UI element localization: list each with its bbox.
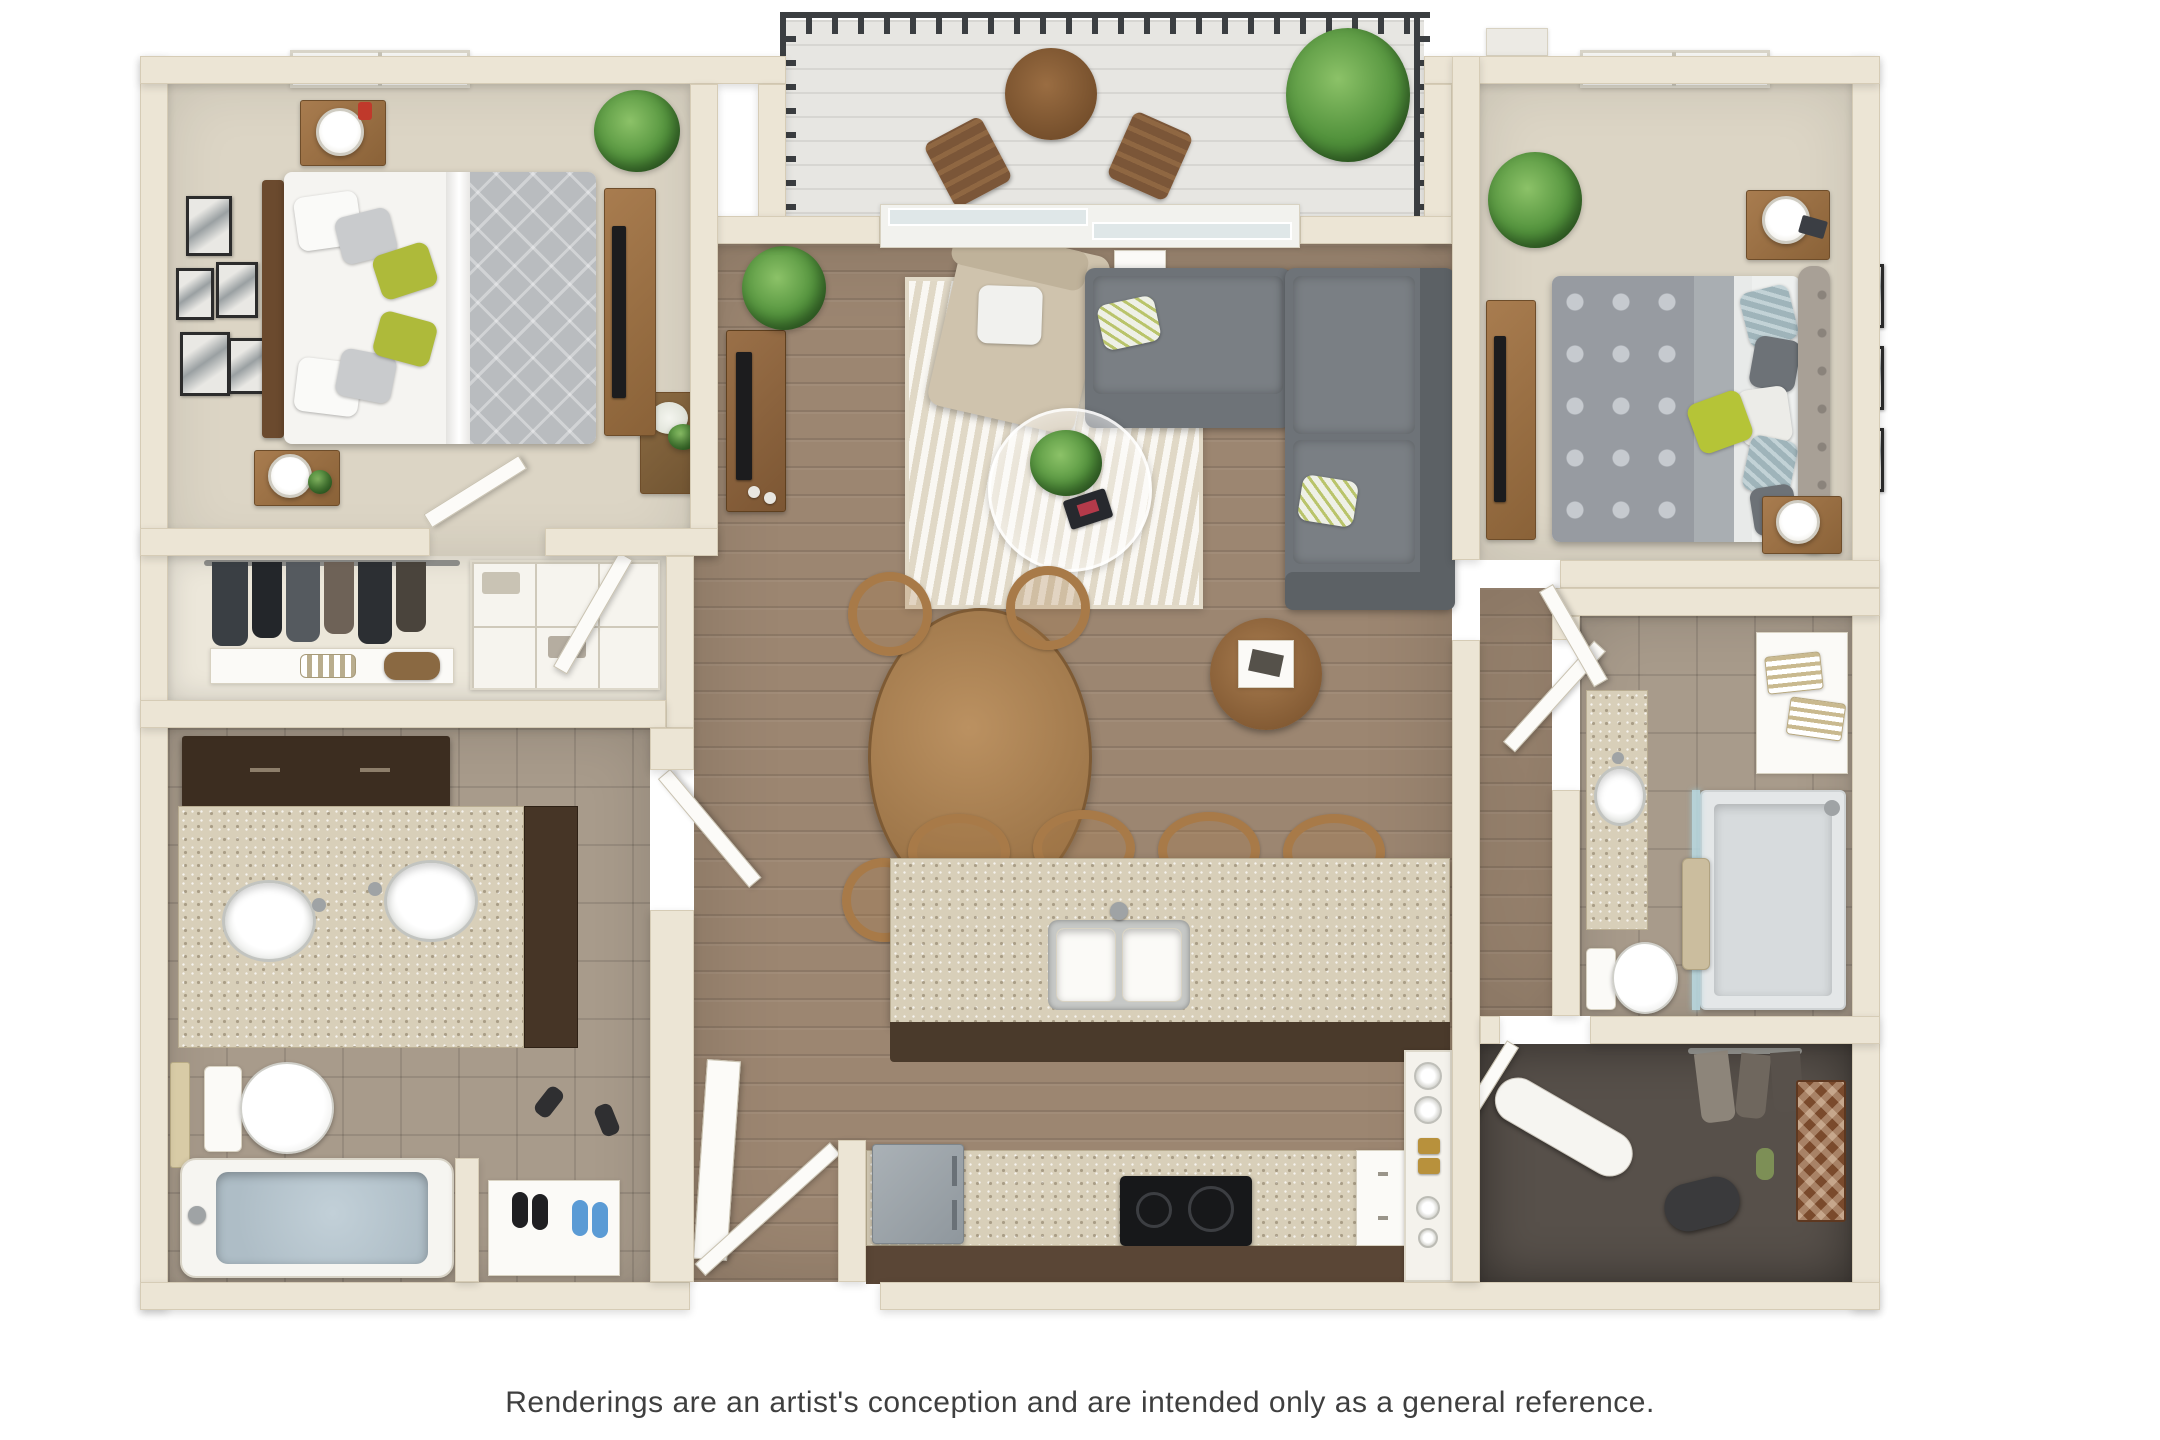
bed-2-pillow-gray: [1748, 334, 1802, 393]
cabinet-handle: [1378, 1172, 1388, 1176]
tv-screen: [736, 352, 752, 480]
tv-screen: [612, 226, 626, 398]
cabinet-handle: [360, 768, 390, 772]
balcony-plant: [1286, 28, 1410, 162]
cabinet-handle: [250, 768, 280, 772]
bed-2-duvet: [1552, 276, 1694, 542]
kitchen-cabinet: [1356, 1150, 1408, 1246]
bowl: [1416, 1196, 1440, 1220]
wall-living-top: [1300, 216, 1452, 244]
wall-outer-right: [1852, 56, 1880, 1310]
sink-basin: [1056, 928, 1116, 1002]
armchair-pillow: [977, 285, 1043, 345]
wall-art-frame: [186, 196, 232, 256]
small-plant: [308, 470, 332, 494]
toilet-bowl: [1612, 942, 1678, 1014]
wall-living-top: [714, 216, 880, 244]
coffee-table-plant: [1030, 430, 1102, 496]
refrigerator-handle: [952, 1200, 957, 1230]
hanging-clothes: [324, 562, 354, 634]
hanging-clothes: [252, 562, 282, 638]
wall-art-frame: [180, 332, 230, 396]
sofa-cushion: [1293, 276, 1415, 434]
wall-kitchen-stub: [838, 1140, 866, 1282]
red-decor: [358, 102, 372, 120]
blue-shoes: [592, 1202, 608, 1238]
sofa-armrest: [1285, 572, 1455, 610]
wall-bedroom-1-east: [690, 84, 718, 556]
rolled-towels: [300, 654, 356, 678]
bed-1-duvet-fold: [446, 172, 472, 444]
sink: [222, 880, 316, 962]
wall-bathroom-1-east: [650, 910, 694, 1282]
balcony-table: [1005, 48, 1097, 140]
striped-towels: [1786, 696, 1847, 741]
shower-towel: [1682, 858, 1710, 970]
dining-chair: [1006, 566, 1090, 650]
plate-stack: [1414, 1062, 1442, 1090]
green-bottle: [1756, 1148, 1774, 1180]
cabinet-handle: [1378, 1216, 1388, 1220]
refrigerator-handle: [952, 1156, 957, 1186]
media-console: [726, 330, 786, 512]
table-lamp: [1776, 500, 1820, 544]
corner-plant: [1488, 152, 1582, 248]
towel-bar: [170, 1062, 190, 1168]
wall-bathroom-1-east: [650, 728, 694, 770]
wall-art-frame: [176, 268, 214, 320]
dining-chair: [848, 572, 932, 656]
cooktop-burner: [1136, 1192, 1172, 1228]
toilet-tank: [204, 1066, 242, 1152]
bed-1-quilt: [470, 172, 596, 444]
wall-bedroom-1-south: [140, 528, 430, 556]
rooftop-vent: [1486, 28, 1548, 56]
hanging-clothes: [286, 562, 320, 642]
toilet-bowl: [240, 1062, 334, 1154]
kitchen-island-cabinet-face: [890, 1022, 1450, 1062]
bathroom-1-upper-cabinet: [182, 736, 450, 808]
floor-plan-rendering: Renderings are an artist's conception an…: [0, 0, 2160, 1440]
black-shoes: [512, 1192, 528, 1228]
wall-bedroom-2-south: [1560, 560, 1880, 588]
hallway-floor: [1480, 588, 1552, 1016]
kitchen-counter-face: [866, 1246, 1410, 1284]
hanging-clothes: [396, 562, 426, 632]
tub-faucet: [188, 1206, 206, 1224]
wall-bedroom-1-south: [545, 528, 718, 556]
wall-closet-1-east: [666, 556, 694, 728]
bowl: [1418, 1228, 1438, 1248]
striped-towels: [1764, 651, 1824, 695]
blue-shoes: [572, 1200, 588, 1236]
wall-closet-2-north: [1590, 1016, 1880, 1044]
patterned-pillow: [1297, 474, 1360, 528]
faucet: [1612, 752, 1624, 764]
corner-plant: [594, 90, 680, 172]
speaker: [764, 492, 776, 504]
bag: [384, 652, 440, 680]
sliding-glass-pane: [1092, 222, 1292, 240]
table-lamp: [268, 454, 312, 498]
plate-stack: [1414, 1096, 1442, 1124]
black-shoes: [532, 1194, 548, 1230]
disclaimer-caption: Renderings are an artist's conception an…: [0, 1386, 2160, 1420]
wall-closet-1-south: [140, 700, 666, 728]
faucet: [368, 882, 382, 896]
shower-tray: [1714, 804, 1832, 996]
wall-tub-divider: [455, 1158, 479, 1282]
bed-1-headboard: [262, 180, 284, 438]
wall-closet-2-north: [1480, 1016, 1500, 1044]
sliding-glass-pane: [888, 208, 1088, 226]
wall-art-frame: [216, 262, 258, 318]
refrigerator: [872, 1144, 964, 1244]
faucet: [312, 898, 326, 912]
sink: [384, 860, 478, 942]
sink: [1594, 766, 1646, 826]
sofa-backrest: [1420, 268, 1455, 610]
tv-screen: [1494, 336, 1506, 502]
bathroom-1-vanity-cabinet: [524, 806, 578, 1048]
wall-outer-left: [140, 56, 168, 1310]
wall-outer-top: [1424, 56, 1880, 84]
wall-bedroom-2-west: [1452, 56, 1480, 560]
living-room-plant: [742, 246, 826, 330]
island-faucet: [1110, 902, 1128, 920]
brass-canister: [1418, 1138, 1440, 1154]
sink-basin: [1122, 928, 1182, 1002]
wall-outer-top: [140, 56, 786, 84]
patterned-runner: [1796, 1080, 1846, 1222]
wall-bathroom-2-west: [1552, 790, 1580, 1016]
bathtub-basin: [216, 1172, 428, 1264]
cooktop-burner: [1188, 1186, 1234, 1232]
wall-outer-bottom: [140, 1282, 690, 1310]
wall-kitchen-east: [1452, 640, 1480, 1282]
wall-outer-bottom: [880, 1282, 1880, 1310]
hanging-clothes: [212, 562, 248, 646]
table-lamp: [316, 108, 364, 156]
shower-head: [1824, 800, 1840, 816]
speaker: [748, 486, 760, 498]
brass-canister: [1418, 1158, 1440, 1174]
hanging-clothes: [358, 562, 392, 644]
wall-bathroom-2-north: [1552, 588, 1880, 616]
folded-linens: [482, 572, 520, 594]
